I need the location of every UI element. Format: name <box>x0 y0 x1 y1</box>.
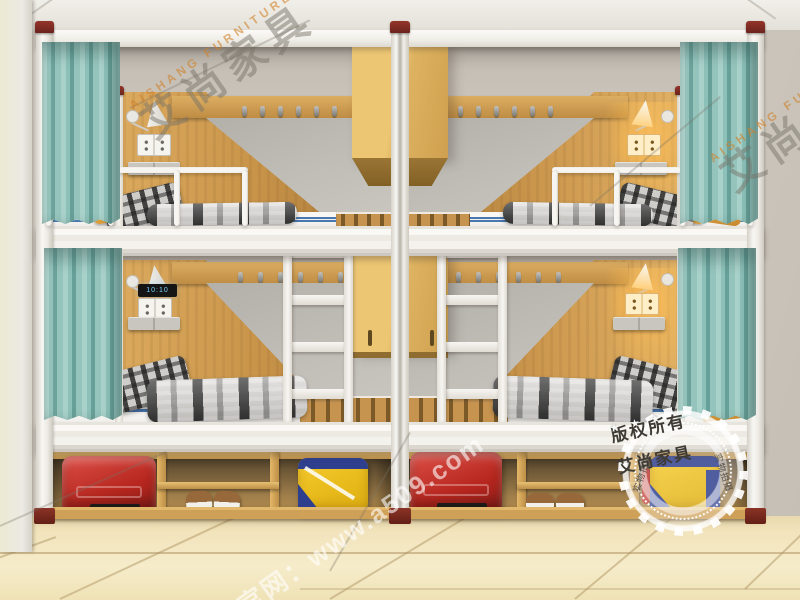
left-side-wall <box>0 0 32 552</box>
lamp-mount <box>661 110 674 123</box>
bed-slats <box>408 212 470 226</box>
ladder-rung <box>442 295 502 305</box>
coat-hook <box>476 106 481 117</box>
power-outlet <box>625 293 659 315</box>
ladder-rail <box>283 248 292 448</box>
ladder-rung <box>442 342 502 352</box>
coat-hook <box>242 106 247 117</box>
curtain-lower-left <box>44 248 122 420</box>
guardrail-bar <box>242 170 248 226</box>
cabinet-handle <box>368 330 372 346</box>
shoe-cubby-shelf <box>157 482 279 489</box>
power-outlet <box>137 134 171 156</box>
guardrail-bar <box>614 170 620 226</box>
coat-hook <box>238 272 243 283</box>
ladder-rail <box>437 248 446 448</box>
ladder-rung <box>442 389 502 399</box>
smart-control-panel: 10:10 <box>138 284 177 297</box>
coat-hook <box>332 106 337 117</box>
ladder-right <box>437 248 507 448</box>
ladder-rung <box>288 342 348 352</box>
guardrail-bar <box>174 170 180 226</box>
tile-grout-line <box>60 516 238 600</box>
bedside-shelf <box>128 317 180 330</box>
coat-hook <box>314 106 319 117</box>
coat-hook <box>556 272 561 283</box>
bunk-bed-product-photo: 10:10 <box>0 0 800 600</box>
ladder-rung <box>288 389 348 399</box>
post-cap <box>390 21 410 33</box>
post-cap <box>35 21 54 33</box>
coat-hook <box>516 272 521 283</box>
bedside-shelf <box>613 317 665 330</box>
red-suitcase <box>62 456 156 512</box>
tile-grout-line <box>300 588 800 590</box>
ladder-rail <box>344 248 353 448</box>
lamp-mount <box>126 110 139 123</box>
curtain-upper-left <box>42 42 120 224</box>
coat-hook <box>494 106 499 117</box>
bag-trim <box>304 466 355 500</box>
curtain-upper-right <box>680 42 758 224</box>
ladder-rung <box>288 295 348 305</box>
coat-hook <box>458 106 463 117</box>
bed-slats <box>332 212 391 226</box>
panel-display: 10:10 <box>146 287 169 294</box>
tile-grout-line <box>0 552 800 554</box>
guardrail-bar <box>552 170 558 226</box>
cabinet-handle <box>430 330 434 346</box>
coat-hook <box>512 106 517 117</box>
curtain-lower-right <box>678 248 756 420</box>
ladder-rail <box>498 248 507 448</box>
coat-hook <box>536 272 541 283</box>
coat-hook <box>296 106 301 117</box>
post-cap <box>746 21 765 33</box>
coat-hook <box>258 272 263 283</box>
tile-grout-line <box>744 526 800 590</box>
power-outlet <box>627 134 661 156</box>
coat-hook <box>278 106 283 117</box>
coat-hook <box>260 106 265 117</box>
ladder-left <box>283 248 353 448</box>
stamp-text: 艾尚家具 版权所有 ★ ★ ★ <box>608 396 757 545</box>
lamp-mount <box>661 273 674 286</box>
coat-hook <box>530 106 535 117</box>
copyright-stamp: 艾尚家具 版权所有 ★ ★ ★ 实物拍摄 实物拍摄 <box>620 408 746 534</box>
coat-hook <box>548 106 553 117</box>
